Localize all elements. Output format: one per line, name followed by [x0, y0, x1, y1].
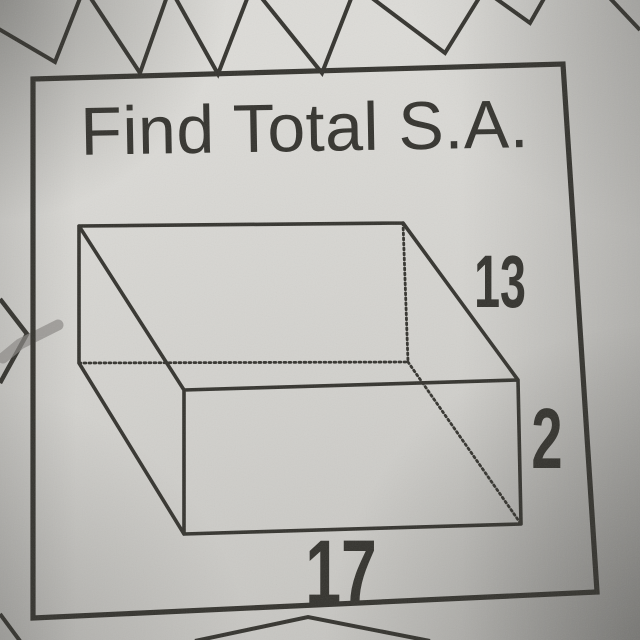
- worksheet-scene: Find Total S.A. 13 2 17: [0, 0, 640, 640]
- paper-grain-overlay: [0, 0, 640, 640]
- worksheet-photo: Find Total S.A. 13 2 17: [0, 0, 640, 640]
